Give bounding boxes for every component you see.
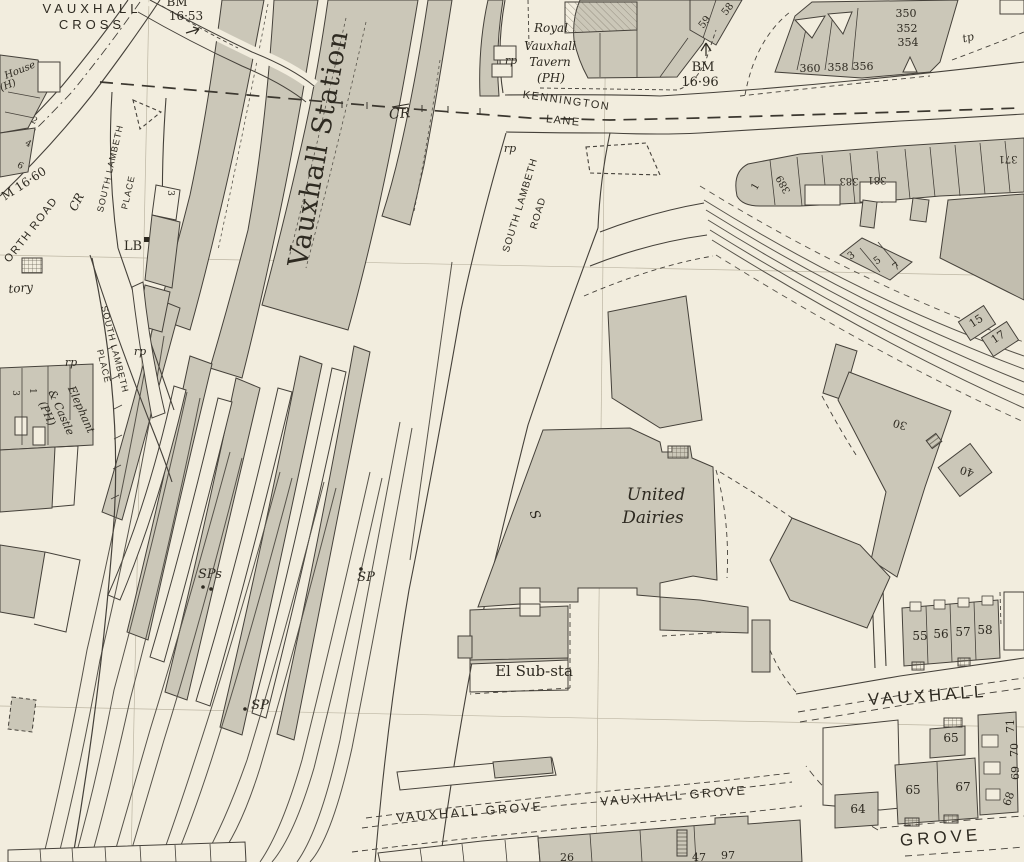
map-viewport[interactable]: VAUXHALLCROSSBM16·53House(H)246M 16·60CR… bbox=[0, 0, 1024, 862]
map-label-bm-1696-a: BM bbox=[692, 60, 715, 75]
map-label-sps: SPs bbox=[198, 567, 222, 582]
map-label-united-a: United bbox=[627, 485, 686, 505]
map-label-no-56: 56 bbox=[933, 627, 948, 641]
map-label-no-47: 47 bbox=[692, 851, 706, 862]
map-label-vauxhall-cross-2: CROSS bbox=[59, 17, 125, 32]
sp2-dot bbox=[243, 707, 247, 711]
map-label-sp-1: SP bbox=[357, 570, 375, 585]
map-label-no-381: 381 bbox=[867, 174, 886, 185]
map-label-no-354: 354 bbox=[898, 36, 919, 49]
map-label-no-64: 64 bbox=[850, 802, 866, 816]
map-label-bm-1653-b: 16·53 bbox=[169, 9, 203, 23]
lb-post-dot bbox=[144, 237, 149, 242]
map-label-united-b: Dairies bbox=[621, 508, 684, 528]
map-label-no-360: 360 bbox=[800, 62, 821, 75]
map-label-bm-1696-b: 16·96 bbox=[681, 75, 718, 90]
map-label-no-55: 55 bbox=[912, 629, 927, 643]
map-label-tavern-b: Vauxhall bbox=[524, 39, 576, 53]
map-label-cr-station: CR bbox=[388, 105, 411, 123]
map-label-no-1w: 1 bbox=[27, 388, 37, 394]
map-label-vauxhall-cross-1: VAUXHALL bbox=[43, 1, 142, 16]
map-label-no-358: 358 bbox=[828, 61, 849, 74]
sps-dot-1 bbox=[201, 585, 205, 589]
map-label-no-383: 383 bbox=[839, 175, 858, 186]
map-label-no-67: 67 bbox=[955, 780, 970, 794]
map-label-no-97: 97 bbox=[721, 849, 735, 862]
sps-dot-2 bbox=[209, 587, 213, 591]
map-label-bm-1653-a: BM bbox=[166, 0, 187, 9]
map-label-no-70: 70 bbox=[1008, 743, 1021, 757]
map-label-lb: LB bbox=[124, 239, 142, 254]
map-label-rp-4: rp bbox=[134, 345, 146, 358]
map-label-tavern-d: (PH) bbox=[537, 71, 565, 85]
map-label-no-65b: 65 bbox=[905, 783, 920, 797]
map-label-no-3sta: 3 bbox=[165, 190, 175, 196]
map-canvas[interactable]: VAUXHALLCROSSBM16·53House(H)246M 16·60CR… bbox=[0, 0, 1024, 862]
map-label-no-352: 352 bbox=[897, 22, 918, 35]
map-label-no-69: 69 bbox=[1009, 766, 1022, 780]
map-label-rp-1: rp bbox=[505, 54, 517, 67]
map-label-el-sub-sta: El Sub-sta bbox=[495, 662, 573, 680]
map-label-sp-2: SP bbox=[251, 698, 269, 713]
map-label-no-58b: 58 bbox=[977, 623, 992, 637]
map-label-rp-3: rp bbox=[65, 356, 77, 369]
map-label-tavern-c: Tavern bbox=[529, 55, 571, 69]
map-label-rp-2: rp bbox=[504, 142, 516, 155]
map-label-no-57: 57 bbox=[955, 625, 970, 639]
map-label-no-371: 371 bbox=[998, 153, 1017, 164]
map-label-no-71: 71 bbox=[1004, 719, 1017, 733]
map-label-factory: tory bbox=[8, 280, 34, 296]
map-label-no-26: 26 bbox=[560, 851, 574, 862]
map-label-no-3w: 3 bbox=[10, 390, 20, 396]
map-label-no-350: 350 bbox=[896, 7, 917, 20]
map-label-no-356: 356 bbox=[853, 60, 874, 73]
map-label-tavern-a: Royal bbox=[533, 21, 568, 35]
map-label-no-65a: 65 bbox=[943, 731, 958, 745]
